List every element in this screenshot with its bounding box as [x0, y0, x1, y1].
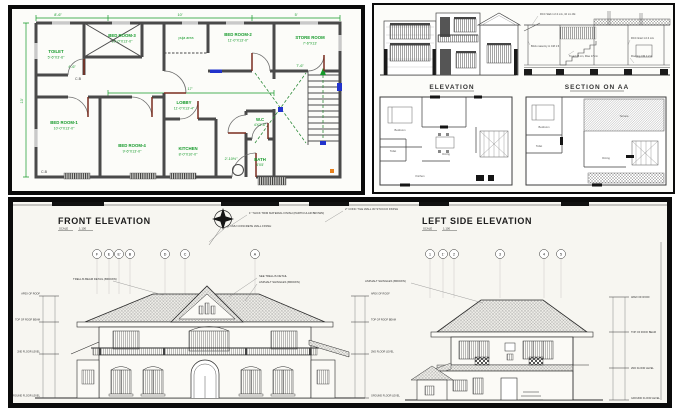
grid-bubble: D	[164, 253, 167, 257]
dim-text: 13'	[20, 98, 24, 103]
room-name: LOBBY	[176, 100, 191, 105]
orange-marker	[330, 169, 334, 173]
section-title: SECTION ON AA	[565, 84, 629, 91]
room-label-kitchen: KITCHEN 8'-0"X10'-0"	[178, 146, 198, 157]
floor-plan-drawing: 8'-6" 10' 5' 17' 4'-6" 7'-6" 2'-10½" 13'	[12, 9, 361, 191]
floor-plan-panel: 8'-6" 10' 5' 17' 4'-6" 7'-6" 2'-10½" 13'	[8, 5, 365, 195]
elevations-drawing: 1" THICK TRIM MATERIAL FINISH (PARTICULA…	[13, 202, 667, 403]
porch-column	[233, 165, 244, 176]
tag-cb-bottom: C.B	[41, 170, 48, 174]
plan-room-label: Dining	[602, 156, 610, 160]
room-label-toilet: TOILET 5'-6"X3'-6"	[48, 49, 65, 60]
room-name: W.C	[256, 117, 264, 122]
side-scale-label: SCALE	[423, 227, 432, 231]
grid-bubble: 4	[543, 253, 545, 257]
level-label: 2ND FLOOR LEVEL	[17, 351, 40, 354]
front-scale-value: 1:100	[79, 227, 86, 231]
level-label: GROUND FLOOR LEVEL	[13, 395, 41, 398]
note-shingles: ASPHALT SHINGLES (BROWN)	[259, 280, 300, 284]
level-label: TOP OF ROOF BEAM	[371, 319, 396, 322]
mini-plan-a: Bedroom Toilet Dining Kitchen	[380, 96, 512, 187]
section-note: Flooring CM 1:2:4	[631, 54, 652, 58]
grid-bubbles-side: 1 1' 2 3 4 5	[426, 250, 566, 299]
side-dimensions: APEX OF ROOF TOP OF ROOF BEAM 2ND FLOOR …	[609, 242, 661, 400]
room-label-puja: puja area	[179, 36, 194, 40]
room-name: BED ROOM-1	[50, 120, 78, 125]
room-name: KITCHEN	[178, 146, 197, 151]
grid-bubble: 2	[453, 253, 455, 257]
dim-text: 10'	[178, 13, 183, 17]
grid-bubble: 1	[429, 253, 431, 257]
note-trim: 1" THICK TRIM MATERIAL FINISH (PARTICULA…	[249, 211, 324, 215]
room-label-store: STORE ROOM 7'-6"X13'	[295, 35, 325, 46]
note-cmu: 4" CMU CONCRETE WALL FINISH	[227, 224, 271, 228]
mini-plan-b: Bedroom Toilet Terrace Dining	[526, 97, 666, 187]
room-dims: 11'-0"X13'-0"	[228, 39, 249, 43]
room-label-bed1: BED ROOM-1 10'-0"X13'-0"	[50, 120, 78, 131]
section-note: RCC lintel 1:2:4 mix	[631, 36, 655, 40]
dim-text: 5'	[295, 13, 298, 17]
grid-bubble: 5	[560, 253, 562, 257]
dim-text: 7'-6"	[296, 64, 304, 68]
level-label: 2ND FLOOR LEVEL	[371, 351, 394, 354]
tag-up: UP	[111, 39, 117, 43]
dim-text: 2'-10½"	[225, 157, 238, 161]
level-label: TOP OF ROOF BEAM	[15, 319, 40, 322]
elevation-section-sheet: ELEVATION RCC Slab 1:2:4 mix, 10 cm thk …	[374, 5, 673, 192]
footings	[524, 69, 668, 75]
level-label: 2ND FLOOR LEVEL	[631, 367, 654, 370]
level-label: APEX OF ROOF	[631, 296, 650, 299]
window-marks	[35, 22, 342, 147]
plan-room-label: Toilet	[536, 144, 543, 148]
front-elevation-drawing	[35, 286, 365, 398]
room-name: BED ROOM-2	[224, 32, 252, 37]
room-dims: 5'-6"X3'-6"	[48, 56, 65, 60]
note-stucco: 2" CONC TILE WALL W/ STUCCO FINISH	[345, 207, 398, 211]
stair-dashed-cross	[255, 73, 323, 143]
grid-bubble: E'	[117, 253, 120, 257]
room-name: BED ROOM-3	[108, 33, 136, 38]
mini-section: RCC Slab 1:2:4 mix, 10 cm thk Brick maso…	[524, 11, 670, 91]
grid-bubble: C	[184, 253, 187, 257]
room-name: puja area	[179, 36, 194, 40]
elevation-title: ELEVATION	[429, 84, 474, 91]
front-elevation-title: FRONT ELEVATION	[58, 216, 151, 226]
note-shingles-side: ASPHALT SHINGLES (BROWN)	[365, 279, 406, 283]
section-note: RCC Slab 1:2:4 mix, 10 cm thk	[540, 12, 576, 16]
room-label-bed2: BED ROOM-2 11'-0"X13'-0"	[224, 32, 252, 43]
note-trellis: SEE TRELLIS DETAIL	[259, 274, 287, 278]
room-dims: 9'-6"X13'-0"	[123, 150, 142, 154]
room-label-bed4: BED ROOM-4 9'-6"X13'-0"	[118, 143, 146, 154]
elevations-panel: 1" THICK TRIM MATERIAL FINISH (PARTICULA…	[8, 197, 672, 408]
room-dims: 4'X5'	[256, 163, 264, 167]
section-note: Brick masonry in CM 1:6	[531, 44, 560, 48]
plan-room-label: Bedroom	[395, 128, 407, 132]
level-label: APEX OF ROOF	[21, 293, 40, 296]
level-label: GROUND FLOOR LEVEL	[371, 395, 401, 398]
level-label: TOP OF ROOF BEAM	[631, 331, 656, 334]
room-name: TOILET	[48, 49, 64, 54]
plan-room-label: Terrace	[620, 114, 629, 118]
grid-bubble: 1'	[442, 253, 445, 257]
side-elevation-drawing	[405, 300, 603, 400]
plan-room-label: Toilet	[390, 149, 397, 153]
front-scale-label: SCALE	[59, 227, 68, 231]
plan-room-label: Kitchen	[416, 174, 425, 178]
mini-elevation: ELEVATION	[380, 13, 520, 91]
room-dims: 7'-6"X13'	[303, 42, 318, 46]
room-dims: 4'X3'-6"	[254, 123, 267, 127]
room-name: BATH	[254, 157, 266, 162]
room-dims: 10'-0"X13'-0"	[54, 127, 75, 131]
room-label-wc: W.C 4'X3'-6"	[254, 117, 267, 127]
room-name: STORE ROOM	[295, 35, 325, 40]
room-dims: 8'-0"X10'-0"	[179, 153, 198, 157]
section-note: Tread 25 cm, Rise 17 cm	[569, 54, 598, 58]
room-label-lobby: LOBBY 11'-0"X13'-4"	[174, 100, 195, 111]
level-label: GROUND FLOOR LEVEL	[631, 397, 661, 400]
side-roof-notes: ASPHALT SHINGLES (BROWN)	[365, 279, 483, 303]
grid-bubble: 3	[499, 253, 501, 257]
thresholds	[64, 173, 286, 185]
top-frame	[13, 202, 667, 206]
room-name: BED ROOM-4	[118, 143, 146, 148]
note-trellis-beam: TRELLIS BEAM DETAIL (BROWN)	[73, 277, 117, 281]
plan-room-label: Bedroom	[539, 125, 551, 129]
grid-bubbles-front: F E E' B D C A	[93, 250, 260, 295]
plan-room-label: Dining	[442, 152, 450, 156]
tag-cb-top: C.B	[75, 77, 82, 81]
side-scale-value: 1:100	[443, 227, 450, 231]
dim-text: 17'	[188, 87, 193, 91]
elevation-section-sheet-panel: ELEVATION RCC Slab 1:2:4 mix, 10 cm thk …	[372, 3, 675, 194]
room-dims: 11'-0"X13'-4"	[174, 107, 195, 111]
dim-text: 8'-6"	[54, 13, 62, 17]
side-elevation-title: LEFT SIDE ELEVATION	[422, 216, 532, 226]
level-label: APEX OF ROOF	[371, 293, 390, 296]
staircase	[308, 71, 340, 145]
material-notes: 1" THICK TRIM MATERIAL FINISH (PARTICULA…	[209, 207, 398, 242]
